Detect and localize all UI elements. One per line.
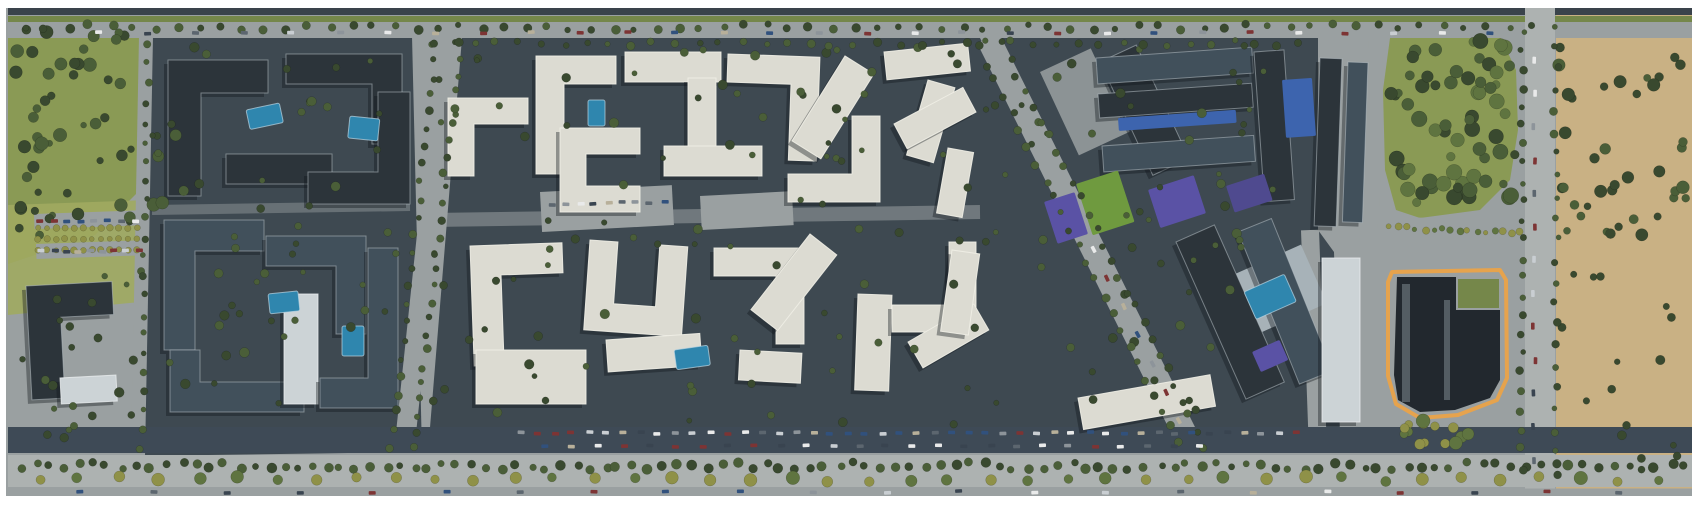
tree	[111, 34, 121, 44]
tree	[404, 318, 410, 324]
tree	[999, 94, 1006, 101]
tree	[1088, 130, 1096, 138]
car	[37, 249, 44, 253]
tree	[1473, 142, 1486, 155]
tree	[1518, 47, 1524, 53]
car	[528, 30, 535, 34]
tree	[749, 464, 758, 473]
tree	[829, 25, 837, 33]
tree	[783, 25, 791, 33]
tree	[350, 21, 358, 29]
tree	[1212, 242, 1218, 248]
tree	[642, 464, 652, 474]
tree	[109, 21, 118, 30]
tree	[1172, 464, 1180, 472]
car	[518, 430, 525, 434]
tree	[940, 152, 946, 158]
tree	[1241, 121, 1247, 127]
car	[724, 432, 731, 436]
car	[776, 432, 783, 436]
tree	[98, 236, 103, 241]
tree	[1475, 229, 1481, 235]
tree	[687, 418, 692, 423]
car	[432, 32, 439, 36]
tree	[142, 178, 148, 184]
tree	[961, 24, 969, 32]
highlighted-plot[interactable]	[1388, 270, 1507, 418]
tree	[601, 220, 607, 226]
tree	[1272, 464, 1280, 472]
tree	[807, 464, 815, 472]
tree	[697, 40, 703, 46]
car	[646, 444, 653, 448]
tree	[71, 225, 77, 231]
tree	[142, 291, 148, 297]
tree	[1089, 369, 1096, 376]
tree	[964, 184, 972, 192]
car	[672, 445, 679, 449]
tree	[143, 141, 148, 146]
tree	[1141, 318, 1149, 326]
tree	[1583, 398, 1590, 405]
tree	[1559, 183, 1569, 193]
tree	[220, 311, 230, 321]
tree	[492, 277, 500, 285]
tree	[145, 196, 150, 201]
tree	[455, 38, 464, 47]
tree	[939, 39, 945, 45]
car	[77, 220, 84, 224]
tree	[1460, 25, 1466, 31]
tree	[1077, 242, 1083, 248]
tree	[175, 23, 184, 32]
car	[624, 30, 631, 34]
tree	[281, 333, 287, 339]
building-central-block-21	[855, 294, 892, 391]
tree	[114, 387, 124, 397]
tree	[195, 179, 204, 188]
tree	[1629, 215, 1638, 224]
car	[759, 431, 766, 435]
tree	[1441, 22, 1448, 29]
tree	[1099, 472, 1111, 484]
tree	[971, 324, 979, 332]
tree	[905, 463, 913, 471]
car	[631, 200, 638, 204]
tree	[1679, 462, 1687, 470]
tree	[1164, 43, 1171, 50]
tree	[254, 279, 260, 285]
tree	[397, 372, 405, 380]
tree	[166, 359, 173, 366]
tree	[1552, 364, 1558, 370]
tree	[1600, 83, 1608, 91]
plot-facade-strip	[1402, 284, 1410, 402]
car	[337, 31, 344, 35]
tree	[748, 380, 756, 388]
tree	[1046, 130, 1054, 138]
tree	[1519, 105, 1525, 111]
tree	[404, 282, 412, 290]
tree	[937, 460, 946, 469]
tree	[1075, 40, 1083, 48]
tree	[1556, 235, 1561, 240]
tree	[861, 91, 868, 98]
tree	[482, 326, 488, 332]
tree	[1288, 24, 1295, 31]
tree	[1094, 41, 1102, 49]
tree	[1256, 460, 1266, 470]
tree	[838, 463, 845, 470]
tree	[331, 182, 341, 192]
car	[1150, 31, 1157, 35]
tree	[1067, 343, 1075, 351]
car	[578, 202, 585, 206]
tree	[859, 148, 864, 153]
tree	[1590, 153, 1600, 163]
tree	[125, 236, 131, 242]
tree	[69, 344, 75, 350]
tree	[1207, 343, 1215, 351]
tree	[680, 48, 688, 56]
tree	[1402, 98, 1414, 110]
tree	[1422, 227, 1429, 234]
tree	[1600, 143, 1611, 154]
tree	[918, 41, 927, 50]
tree	[838, 418, 847, 427]
tree	[143, 101, 150, 108]
tree	[821, 310, 827, 316]
tree	[1517, 120, 1524, 127]
car	[595, 444, 602, 448]
tree	[1054, 42, 1059, 47]
tree	[1519, 466, 1527, 474]
tree	[34, 460, 41, 467]
tree	[773, 463, 783, 473]
tree	[31, 207, 39, 215]
car	[778, 444, 785, 448]
tree	[1475, 77, 1486, 88]
tree	[444, 154, 451, 161]
tree	[1019, 102, 1025, 108]
tree	[1504, 61, 1515, 72]
tree	[1520, 234, 1527, 241]
car	[1138, 431, 1145, 435]
car	[966, 431, 973, 435]
tree	[1577, 212, 1585, 220]
tree	[451, 104, 460, 113]
car	[1295, 31, 1302, 35]
tree	[1306, 22, 1312, 28]
tree	[429, 300, 437, 308]
tree	[293, 241, 299, 247]
tree	[18, 140, 31, 153]
tree	[1228, 464, 1234, 470]
tree	[654, 25, 662, 33]
tree	[1597, 273, 1605, 281]
tree	[45, 461, 52, 468]
tree	[754, 349, 760, 355]
car	[1532, 256, 1536, 263]
car	[724, 443, 731, 447]
tree	[114, 471, 125, 482]
car	[1104, 32, 1111, 36]
tree	[1500, 109, 1510, 119]
tree	[986, 475, 997, 486]
tree	[1404, 223, 1411, 230]
tree	[423, 344, 431, 352]
tree	[1336, 472, 1346, 482]
tree	[1463, 458, 1471, 466]
tree	[545, 217, 551, 223]
tree	[1184, 475, 1193, 484]
tree	[842, 117, 847, 122]
car	[1531, 290, 1535, 297]
tree	[1023, 476, 1033, 486]
tree	[767, 412, 774, 419]
tree	[328, 24, 336, 32]
tree	[352, 473, 362, 483]
tree	[1127, 343, 1135, 351]
tree	[467, 475, 478, 486]
tree	[1551, 259, 1558, 266]
tree	[1654, 166, 1666, 178]
tree	[382, 308, 388, 314]
car	[999, 432, 1006, 436]
tree	[300, 270, 305, 275]
tree	[1081, 464, 1091, 474]
tree	[72, 208, 84, 220]
tree	[1023, 88, 1029, 94]
tree	[1371, 463, 1381, 473]
tree	[1415, 186, 1429, 200]
tree	[1431, 464, 1438, 471]
tree	[425, 107, 433, 115]
tree	[740, 38, 747, 45]
tree	[1116, 88, 1126, 98]
tree	[692, 241, 697, 246]
tree	[384, 229, 392, 237]
tree	[704, 464, 714, 474]
tree	[687, 382, 694, 389]
tree	[204, 463, 214, 473]
tree	[765, 21, 772, 28]
tree	[1141, 475, 1151, 485]
tree	[416, 395, 423, 402]
tree	[1552, 406, 1557, 411]
car	[662, 490, 669, 494]
tree	[496, 102, 503, 109]
tree	[605, 41, 610, 46]
tree	[819, 201, 826, 208]
tree	[163, 460, 171, 468]
tree	[231, 470, 244, 483]
tree	[142, 236, 149, 243]
tree	[273, 475, 283, 485]
tree	[996, 463, 1004, 471]
tree	[432, 282, 437, 287]
tree	[1519, 272, 1526, 279]
tree	[630, 234, 637, 241]
car	[87, 249, 94, 253]
tree	[1493, 144, 1508, 159]
tree	[89, 237, 94, 242]
tree	[993, 230, 998, 235]
tree	[864, 477, 874, 487]
tree	[1516, 228, 1523, 235]
tree	[426, 314, 432, 320]
tree	[1352, 21, 1361, 30]
tree	[229, 302, 236, 309]
car	[122, 249, 129, 253]
tree	[807, 40, 816, 49]
tree	[1031, 161, 1039, 169]
tree	[1516, 443, 1524, 451]
tree	[1456, 472, 1467, 483]
car	[192, 31, 199, 35]
tree	[832, 104, 841, 113]
tree	[294, 465, 301, 472]
tree	[867, 68, 876, 77]
tree	[991, 102, 999, 110]
tree	[410, 250, 415, 255]
tree	[1614, 359, 1620, 365]
car	[1247, 30, 1254, 34]
car	[1224, 430, 1231, 434]
tree	[431, 251, 438, 258]
tree	[647, 38, 654, 45]
tree	[28, 112, 38, 122]
tree	[72, 473, 82, 483]
tree	[1432, 228, 1437, 233]
tree	[418, 365, 425, 372]
tree	[1431, 422, 1440, 431]
tree	[626, 42, 635, 51]
building-central-block-10	[664, 146, 762, 176]
tree	[1490, 459, 1499, 468]
car	[1033, 431, 1040, 435]
tree	[1185, 136, 1194, 145]
tree	[1480, 459, 1488, 467]
tree	[1520, 257, 1527, 264]
tree	[360, 282, 366, 288]
car	[1171, 444, 1178, 448]
tree	[563, 43, 569, 49]
tree	[733, 458, 743, 468]
tree	[1663, 303, 1670, 310]
car	[881, 443, 888, 447]
tree	[948, 50, 955, 57]
tree	[1166, 421, 1174, 429]
tree	[547, 473, 556, 482]
tree	[1045, 180, 1052, 187]
tree	[1457, 228, 1464, 235]
tree	[295, 223, 302, 230]
tree	[267, 463, 277, 473]
tree	[498, 465, 507, 474]
tree	[1449, 436, 1462, 449]
tree	[190, 42, 200, 52]
tree	[520, 132, 529, 141]
building-central-block-15	[476, 350, 586, 404]
tree	[1550, 130, 1558, 138]
car	[1531, 389, 1535, 396]
car	[810, 491, 817, 495]
car	[1534, 357, 1538, 364]
tree	[153, 26, 161, 34]
tree	[585, 40, 591, 46]
car	[63, 250, 70, 254]
tree	[36, 475, 45, 484]
tree	[76, 459, 85, 468]
car	[1471, 491, 1478, 495]
tree	[1386, 224, 1391, 229]
tree	[1551, 43, 1557, 49]
tree	[259, 178, 265, 184]
tree	[693, 225, 702, 234]
car	[1532, 190, 1536, 197]
tree	[302, 21, 310, 29]
car	[541, 444, 548, 448]
tree	[193, 460, 202, 469]
pool-pool-west-3	[268, 291, 300, 314]
tree	[1157, 352, 1164, 359]
tree	[474, 58, 479, 63]
tree	[1485, 82, 1497, 94]
tree	[534, 332, 543, 341]
tree	[1038, 263, 1045, 270]
tree	[43, 431, 51, 439]
tree	[457, 56, 463, 62]
tree	[57, 317, 63, 323]
tree	[1553, 448, 1559, 454]
tree	[687, 460, 697, 470]
tree	[43, 68, 55, 80]
car	[1532, 457, 1536, 464]
tree	[1217, 471, 1229, 483]
tree	[1553, 459, 1562, 468]
tree	[1623, 421, 1631, 429]
tree	[1675, 60, 1685, 70]
car	[90, 219, 97, 223]
tree	[1405, 71, 1414, 80]
tree	[734, 90, 741, 97]
tree	[128, 24, 135, 31]
tree	[1499, 180, 1507, 188]
tree	[719, 460, 728, 469]
tree	[1415, 22, 1422, 29]
car	[384, 31, 391, 35]
tree	[725, 140, 734, 149]
tree	[1507, 463, 1515, 471]
tree	[822, 476, 833, 487]
tree	[1090, 274, 1097, 281]
tree	[1108, 333, 1117, 342]
tree	[391, 472, 402, 483]
tree	[60, 464, 68, 472]
tree	[392, 406, 401, 415]
tree	[394, 392, 402, 400]
car	[577, 31, 584, 35]
car	[1276, 431, 1283, 435]
tree	[179, 186, 189, 196]
tree	[1093, 462, 1103, 472]
car	[104, 218, 111, 222]
tree	[211, 380, 217, 386]
tree	[422, 464, 431, 473]
tree	[1284, 466, 1291, 473]
tree	[283, 65, 291, 73]
